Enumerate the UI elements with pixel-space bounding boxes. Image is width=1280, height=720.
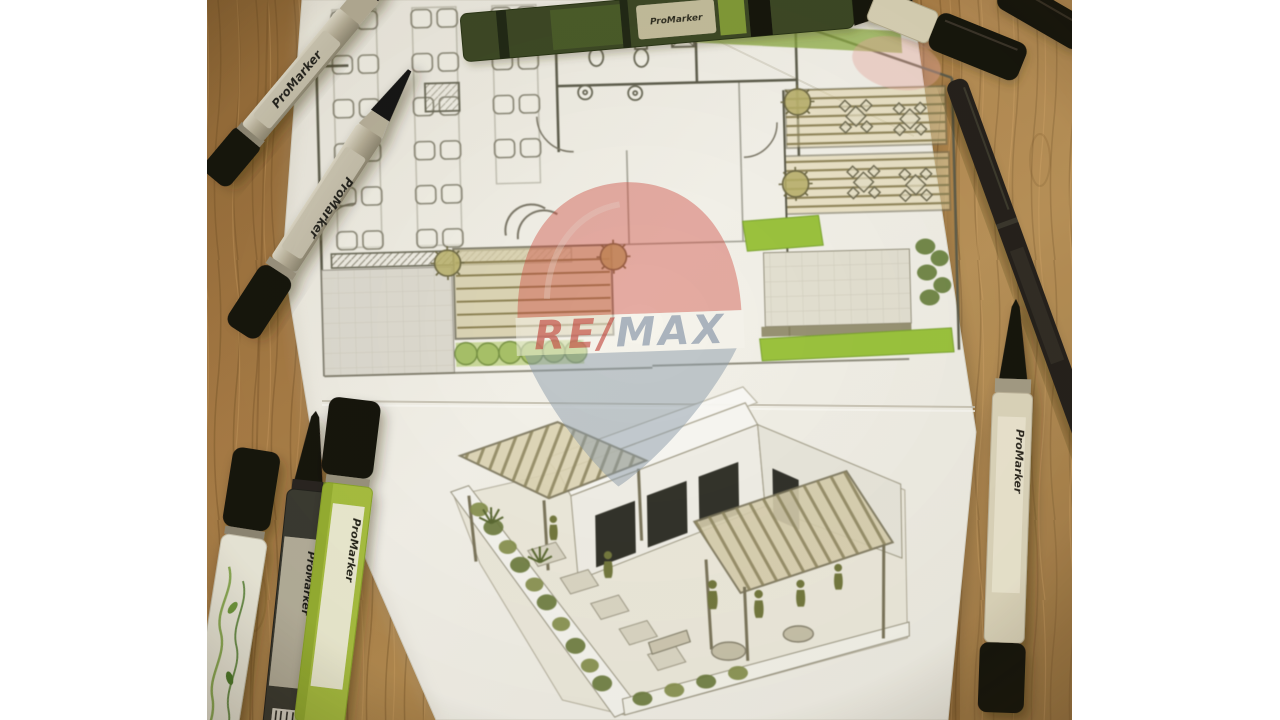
photo-stage: RE/MAX ProMarker ProMarker — [0, 0, 1280, 720]
photo-vignette — [207, 0, 1072, 720]
photo-scene: RE/MAX ProMarker ProMarker — [0, 0, 1280, 720]
